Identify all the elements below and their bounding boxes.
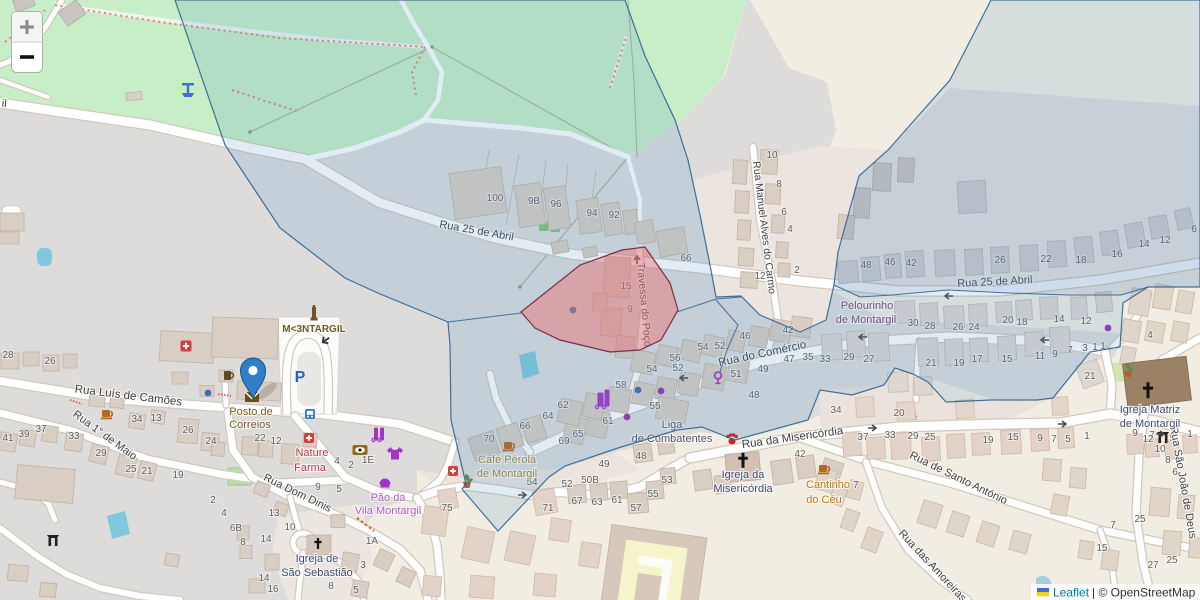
svg-text:15: 15: [1007, 432, 1019, 443]
svg-text:2: 2: [210, 495, 216, 506]
svg-text:1E: 1E: [362, 455, 375, 466]
svg-text:8: 8: [240, 537, 246, 548]
svg-text:8: 8: [1165, 455, 1171, 466]
svg-text:27: 27: [1147, 560, 1159, 571]
svg-text:12: 12: [270, 436, 282, 447]
svg-text:33: 33: [68, 431, 80, 442]
svg-text:6B: 6B: [230, 523, 243, 534]
svg-text:61: 61: [611, 495, 623, 506]
svg-text:Leaflet: Leaflet: [1053, 586, 1090, 600]
svg-text:19: 19: [172, 470, 184, 481]
svg-text:1: 1: [1187, 429, 1193, 440]
svg-text:24: 24: [205, 436, 217, 447]
svg-text:20: 20: [893, 408, 905, 419]
svg-text:21: 21: [1084, 371, 1096, 382]
svg-text:67: 67: [571, 496, 583, 507]
svg-text:22: 22: [254, 433, 266, 444]
svg-text:Igreja da: Igreja da: [722, 469, 766, 481]
svg-text:10: 10: [766, 150, 778, 161]
svg-text:49: 49: [598, 459, 610, 470]
svg-text:Farma: Farma: [294, 462, 327, 474]
svg-text:5: 5: [353, 585, 359, 596]
svg-text:5: 5: [336, 484, 342, 495]
svg-text:42: 42: [794, 449, 806, 460]
svg-text:P: P: [295, 369, 306, 386]
svg-text:34: 34: [131, 414, 143, 425]
svg-text:7: 7: [1051, 434, 1057, 445]
svg-text:25: 25: [125, 464, 137, 475]
svg-text:Igreja de: Igreja de: [296, 553, 339, 565]
svg-text:50B: 50B: [581, 475, 599, 486]
svg-text:6: 6: [781, 207, 787, 218]
svg-text:28: 28: [2, 350, 14, 361]
svg-text:São Sebastião: São Sebastião: [281, 567, 353, 579]
svg-text:Nature: Nature: [295, 447, 328, 459]
svg-text:57: 57: [630, 503, 642, 514]
svg-text:do Céu: do Céu: [806, 494, 841, 506]
svg-text:4: 4: [1147, 330, 1153, 341]
svg-text:1A: 1A: [366, 536, 379, 547]
svg-text:13: 13: [150, 413, 162, 424]
svg-text:Correios: Correios: [229, 419, 271, 431]
svg-text:33: 33: [884, 430, 896, 441]
svg-text:Cantinho: Cantinho: [806, 479, 850, 491]
svg-text:Igreja Matriz: Igreja Matriz: [1120, 404, 1181, 416]
svg-text:34: 34: [830, 405, 842, 416]
svg-text:21: 21: [141, 466, 153, 477]
svg-text:25: 25: [924, 432, 936, 443]
svg-text:37: 37: [35, 424, 47, 435]
svg-text:4: 4: [334, 456, 340, 467]
svg-text:75: 75: [441, 503, 453, 514]
svg-text:29: 29: [907, 431, 919, 442]
svg-text:3: 3: [360, 560, 366, 571]
svg-text:25: 25: [1166, 555, 1178, 566]
svg-text:2: 2: [794, 265, 800, 276]
svg-text:26: 26: [182, 425, 194, 436]
svg-text:14: 14: [260, 534, 272, 545]
svg-text:29: 29: [95, 448, 107, 459]
svg-text:26: 26: [44, 356, 56, 367]
svg-text:71: 71: [542, 503, 554, 514]
svg-text:M<3NTARGIL: M<3NTARGIL: [282, 324, 345, 335]
svg-text:9: 9: [1037, 433, 1043, 444]
svg-text:12: 12: [1142, 434, 1154, 445]
svg-text:13: 13: [268, 508, 280, 519]
svg-text:41: 41: [2, 433, 14, 444]
svg-text:8: 8: [328, 581, 334, 592]
svg-text:Pão da: Pão da: [371, 492, 407, 504]
svg-text:9: 9: [315, 482, 321, 493]
svg-text:37: 37: [857, 432, 869, 443]
svg-text:10: 10: [1154, 444, 1166, 455]
svg-text:Misericórdia: Misericórdia: [713, 483, 773, 495]
svg-text:5: 5: [1065, 434, 1071, 445]
svg-text:2: 2: [348, 460, 354, 471]
svg-text:4: 4: [787, 224, 793, 235]
svg-text:63: 63: [591, 497, 603, 508]
svg-text:7: 7: [1110, 520, 1116, 531]
svg-text:Posto de: Posto de: [229, 406, 272, 418]
svg-text:1: 1: [1084, 431, 1090, 442]
svg-text:Vila Montargil: Vila Montargil: [355, 505, 421, 517]
svg-text:39: 39: [18, 429, 30, 440]
svg-text:10: 10: [284, 522, 296, 533]
svg-text:8: 8: [776, 179, 782, 190]
svg-text:15: 15: [1096, 543, 1108, 554]
svg-text:7: 7: [853, 480, 859, 491]
svg-text:52: 52: [561, 479, 573, 490]
svg-text:4: 4: [221, 508, 227, 519]
svg-text:de Montargil: de Montargil: [1120, 418, 1181, 430]
svg-text:14: 14: [258, 573, 270, 584]
svg-text:55: 55: [647, 489, 659, 500]
svg-text:16: 16: [267, 584, 279, 595]
svg-text:25: 25: [1134, 514, 1146, 525]
svg-text:53: 53: [661, 475, 673, 486]
svg-text:19: 19: [982, 435, 994, 446]
svg-text:| © OpenStreetMap: | © OpenStreetMap: [1092, 586, 1196, 600]
svg-text:il: il: [1, 98, 7, 110]
svg-text:48: 48: [635, 451, 647, 462]
